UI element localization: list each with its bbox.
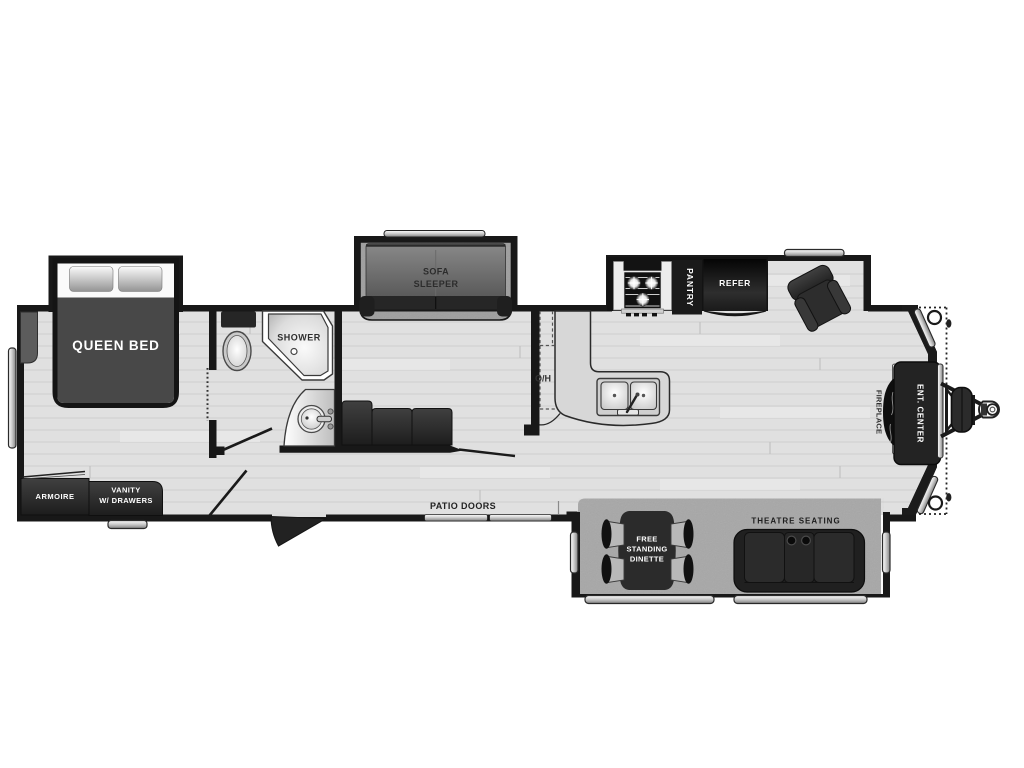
svg-text:DINETTE: DINETTE [630, 555, 664, 564]
svg-text:PATIO DOORS: PATIO DOORS [430, 501, 496, 511]
svg-text:STANDING: STANDING [626, 545, 667, 554]
svg-text:FIREPLACE: FIREPLACE [875, 390, 884, 434]
svg-text:SOFA: SOFA [423, 267, 449, 277]
svg-text:FREE: FREE [636, 535, 657, 544]
svg-text:PANTRY: PANTRY [685, 268, 695, 307]
svg-text:W/ DRAWERS: W/ DRAWERS [99, 496, 153, 505]
svg-text:SLEEPER: SLEEPER [414, 279, 459, 289]
svg-text:SHOWER: SHOWER [277, 333, 321, 343]
svg-text:THEATRE SEATING: THEATRE SEATING [751, 517, 840, 526]
svg-text:REFER: REFER [719, 278, 751, 288]
svg-text:ARMOIRE: ARMOIRE [36, 492, 75, 501]
svg-text:O/H: O/H [535, 374, 551, 384]
svg-text:QUEEN BED: QUEEN BED [72, 338, 159, 353]
svg-text:VANITY: VANITY [111, 486, 140, 495]
svg-text:ENT. CENTER: ENT. CENTER [916, 384, 925, 443]
